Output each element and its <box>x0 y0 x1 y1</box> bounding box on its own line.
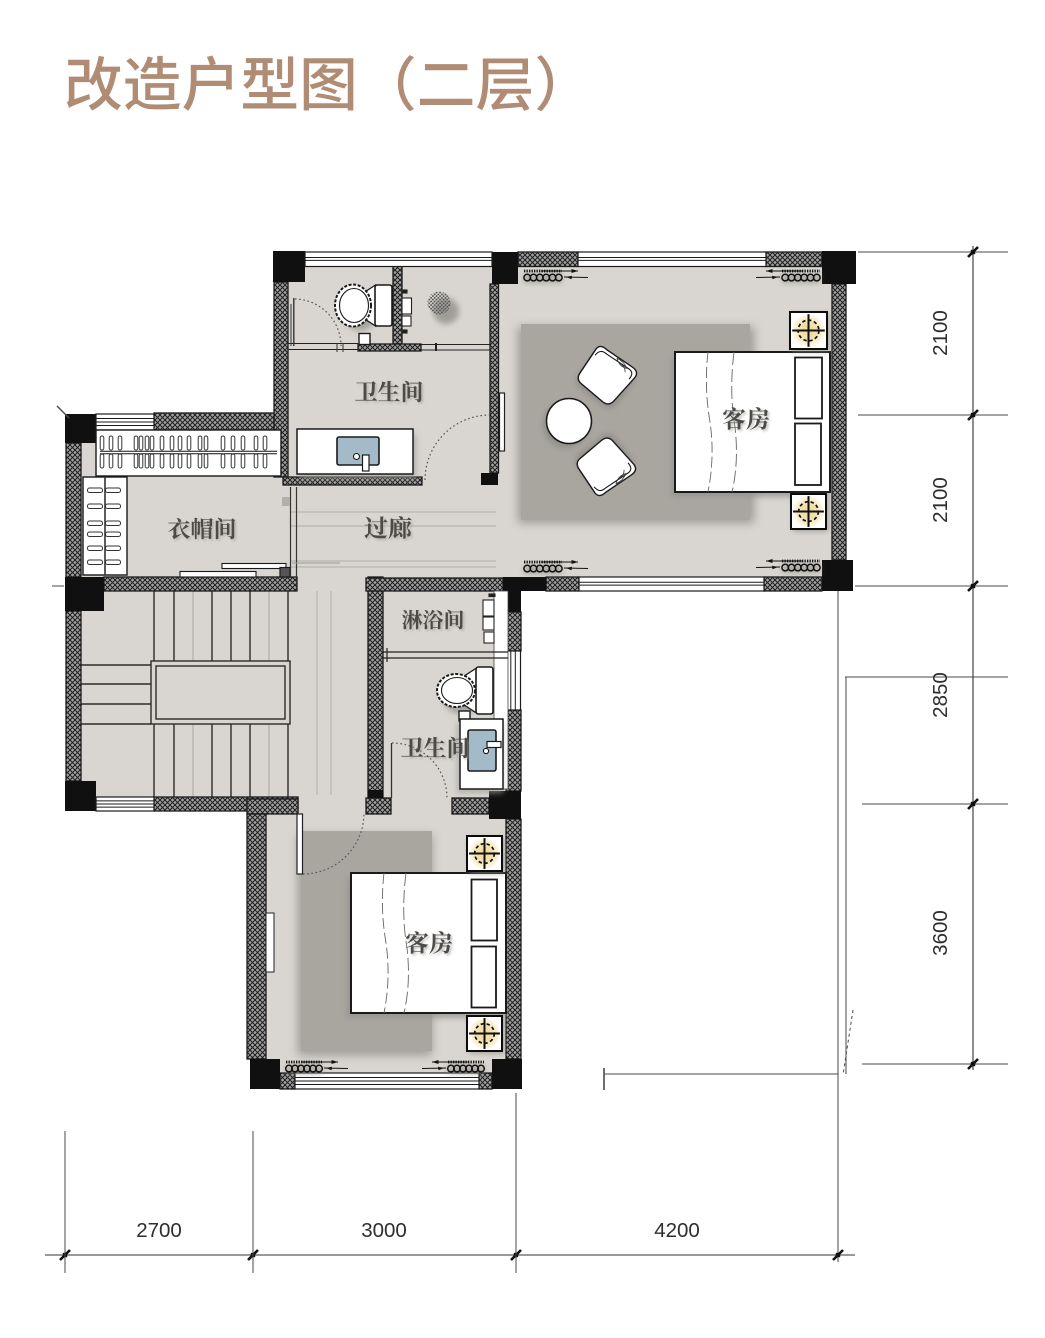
svg-text:3600: 3600 <box>929 910 952 956</box>
svg-text:2700: 2700 <box>136 1219 182 1242</box>
svg-text:4200: 4200 <box>654 1219 700 1242</box>
svg-text:3000: 3000 <box>361 1219 407 1242</box>
svg-text:2100: 2100 <box>929 477 952 523</box>
svg-text:2100: 2100 <box>929 310 952 356</box>
svg-text:2850: 2850 <box>929 672 952 718</box>
